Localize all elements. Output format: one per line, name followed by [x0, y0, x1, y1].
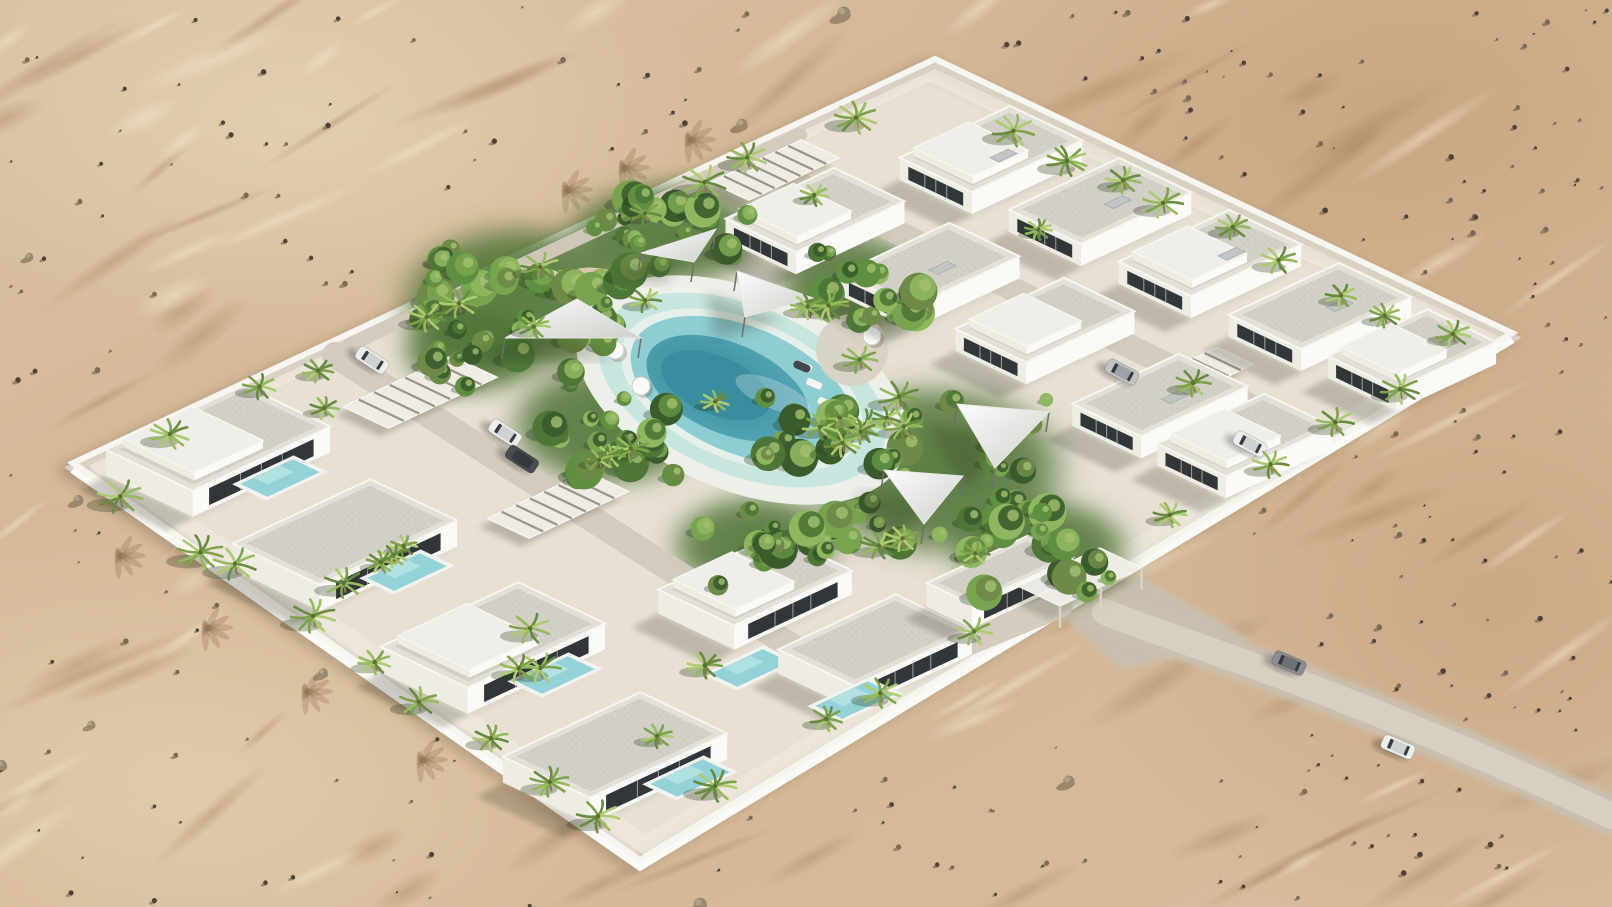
- patio-umbrella: [632, 377, 650, 395]
- aerial-3d-render: [0, 0, 1612, 907]
- scene-svg: [0, 0, 1612, 907]
